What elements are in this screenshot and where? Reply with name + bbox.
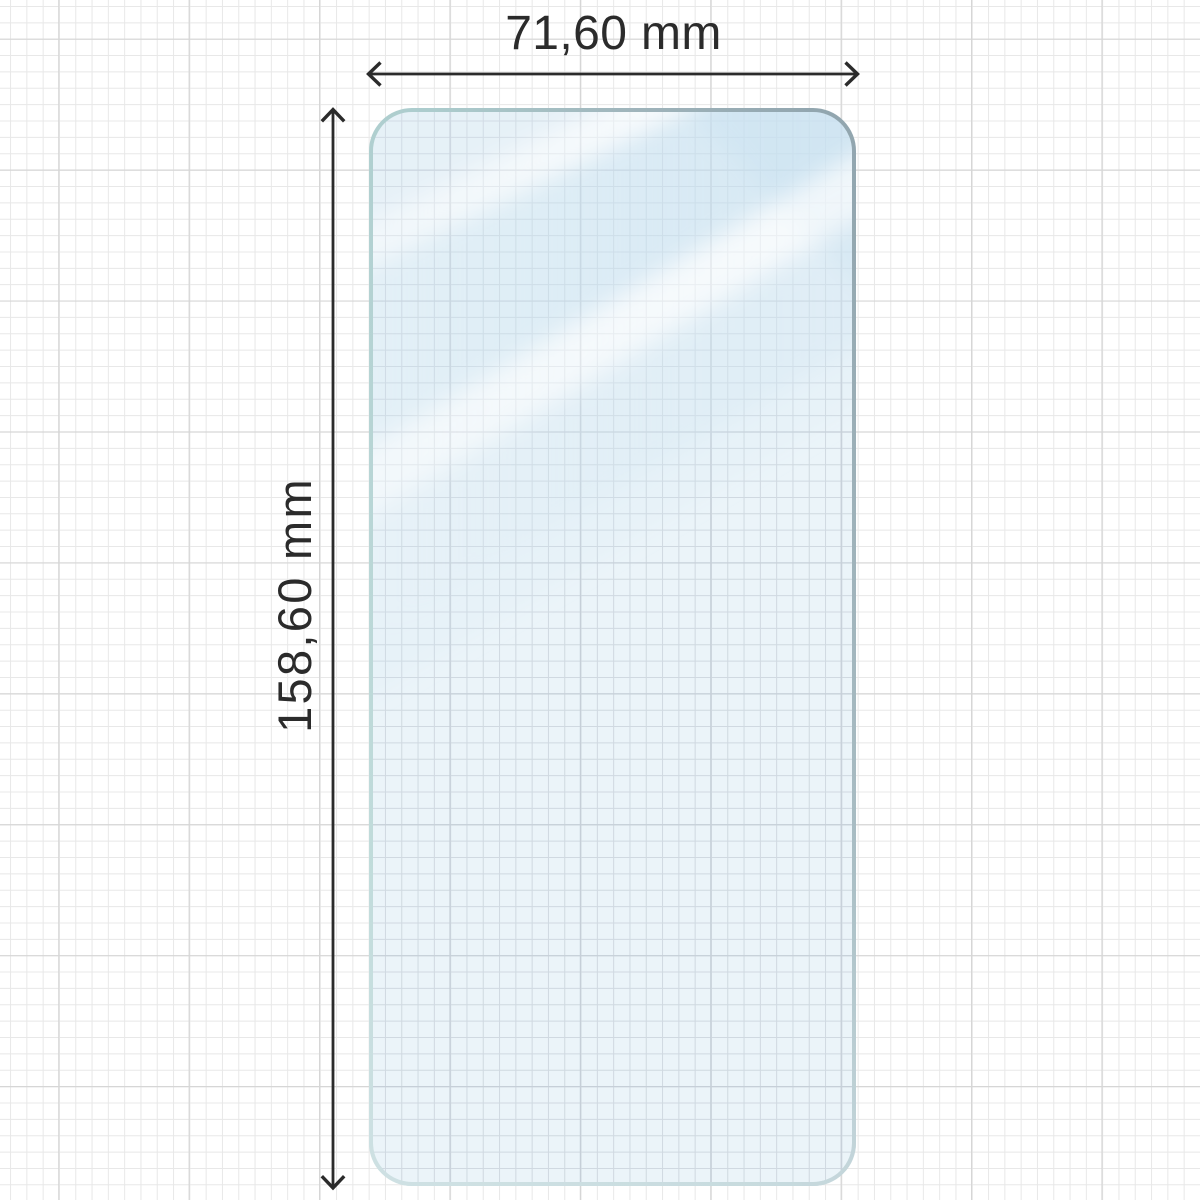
svg-text:71,60 mm: 71,60 mm — [505, 7, 722, 60]
svg-text:158,60 mm: 158,60 mm — [268, 477, 321, 733]
